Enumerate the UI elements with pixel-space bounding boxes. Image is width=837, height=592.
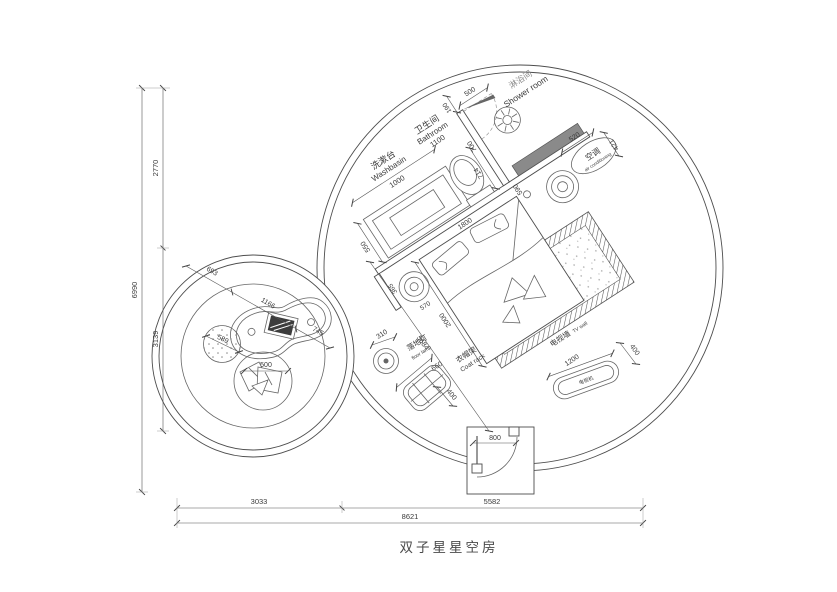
dim-door-800: 800: [489, 435, 501, 442]
door-frame-post: [509, 427, 519, 436]
dim-8621: 8621: [402, 512, 419, 521]
floor-plan-drawing: 空调 air conditioning 洗漱台 Washbasin 1000 5…: [0, 0, 837, 592]
left-dimensions: 6990 2770 3139: [130, 88, 170, 492]
dim-5582: 5582: [484, 497, 501, 506]
dim-3033: 3033: [251, 497, 268, 506]
dim-3139: 3139: [151, 331, 160, 348]
drawing-title: 双子星星空房: [400, 540, 499, 555]
lounge-circle-inner-wall: [159, 262, 347, 450]
bottom-dimensions: 3033 5582 8621: [177, 497, 643, 528]
entry-vestibule: 800: [467, 427, 534, 494]
dim-2770: 2770: [151, 160, 160, 177]
dim-6990: 6990: [130, 282, 139, 299]
dim-chair-500: 500: [260, 362, 272, 369]
pouf: 589: [204, 326, 241, 363]
floor-plan-canvas: 空调 air conditioning 洗漱台 Washbasin 1000 5…: [0, 0, 837, 592]
door-frame-post: [472, 464, 482, 473]
